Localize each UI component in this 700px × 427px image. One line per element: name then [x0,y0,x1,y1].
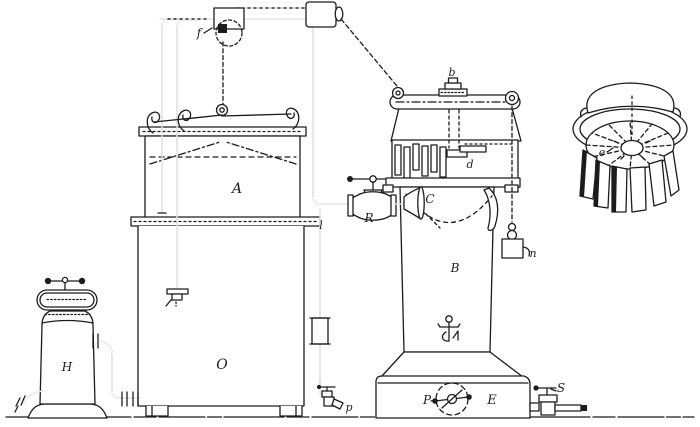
pipe-union [122,392,127,406]
can-foot [28,404,107,418]
part-label-B: B [450,261,460,275]
counterweight-n [502,239,523,258]
part-label-E: E [486,393,497,408]
outer-tank-O [131,217,320,416]
can-spout [24,391,42,403]
sling-lines [154,114,291,122]
part-label-b: b [448,66,455,79]
hoist-gear [147,19,397,133]
vessel-skirt [381,352,523,377]
strainer-slat [431,145,437,172]
strainer-slat [422,146,428,176]
part-label-e: e [599,146,606,159]
pipe-union [312,318,328,344]
strainer-slat [413,144,419,170]
part-label-f: f [196,26,204,40]
strainer-slat [440,147,446,177]
lid-cone [391,108,521,141]
impeller-hub [621,141,643,156]
part-label-A: A [230,181,242,197]
impeller-detail [573,83,687,212]
part-label-l: l [319,219,323,232]
engraving-page: f A O H l R C b d B n e p P E S [0,0,700,427]
strainer-slat [404,147,410,178]
can-body [40,311,95,404]
tee-fitting [306,2,336,27]
tank-foot [146,406,168,416]
feed-can-H [15,277,140,418]
part-label-P: P [422,393,432,407]
right-plumbing [310,318,343,409]
receiver-vessel-B [376,78,587,418]
lid-hoist-chain [341,19,397,86]
part-label-p: p [345,401,352,414]
feed-pipe [99,341,140,398]
drain-valve-p [322,391,332,397]
lid-pulley [506,92,519,105]
part-label-n: n [529,247,536,260]
part-label-S: S [557,381,565,395]
lid-eye-ring [393,88,404,99]
part-label-R: R [363,211,373,225]
tank-foot [280,406,302,416]
pipe-to-valve-R [313,27,352,204]
pipe-nozzle [167,289,188,294]
part-label-H: H [61,360,73,374]
vessel-flange [386,178,520,187]
part-label-C: C [425,192,434,206]
part-label-d: d [466,158,473,171]
strainer-band [392,140,518,180]
hook [286,108,298,129]
lifting-ring [217,105,228,116]
part-label-O: O [216,357,228,373]
inner-tank-A [139,127,306,219]
strainer-slat [395,145,401,175]
apparatus-diagram: f A O H l R C b d B n e p P E S [0,0,700,427]
